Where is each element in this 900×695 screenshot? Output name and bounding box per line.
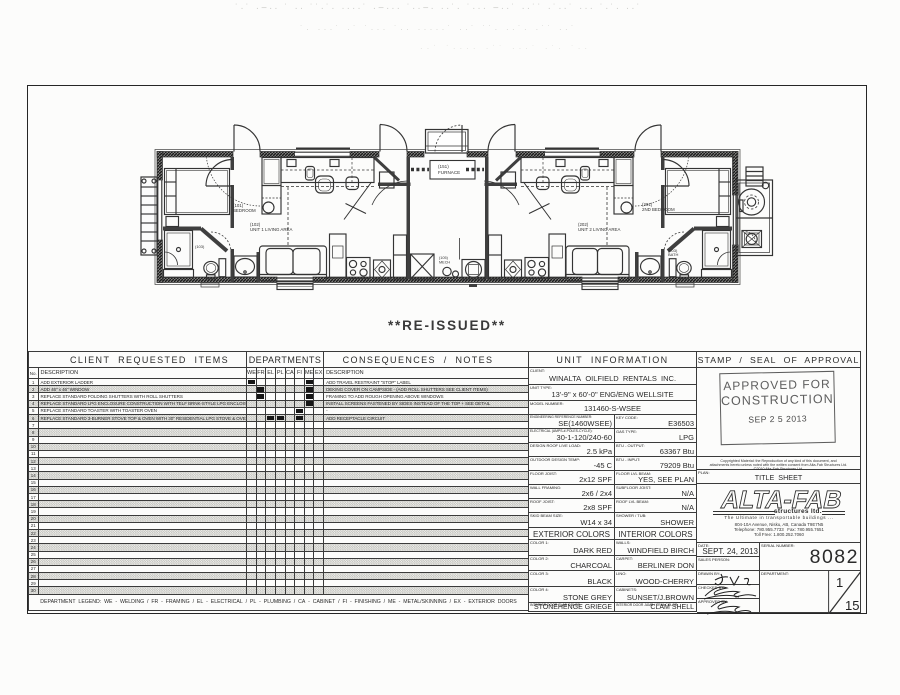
svg-text:(103): (103): [195, 244, 205, 249]
svg-text:MECH: MECH: [439, 261, 450, 265]
svg-text:BEDROOM: BEDROOM: [233, 208, 256, 213]
svg-text:(105): (105): [439, 256, 449, 260]
svg-text:15: 15: [845, 598, 859, 613]
svg-text:2ND BEDROOM: 2ND BEDROOM: [642, 207, 675, 212]
svg-text:UNIT 1 LIVING AREA: UNIT 1 LIVING AREA: [250, 227, 292, 232]
svg-text:(151): (151): [438, 164, 449, 169]
svg-text:BATH: BATH: [668, 252, 678, 257]
svg-text:1: 1: [836, 575, 843, 590]
svg-text:FURNACE: FURNACE: [438, 170, 460, 175]
svg-text:UNIT 2 LIVING AREA: UNIT 2 LIVING AREA: [578, 227, 620, 232]
